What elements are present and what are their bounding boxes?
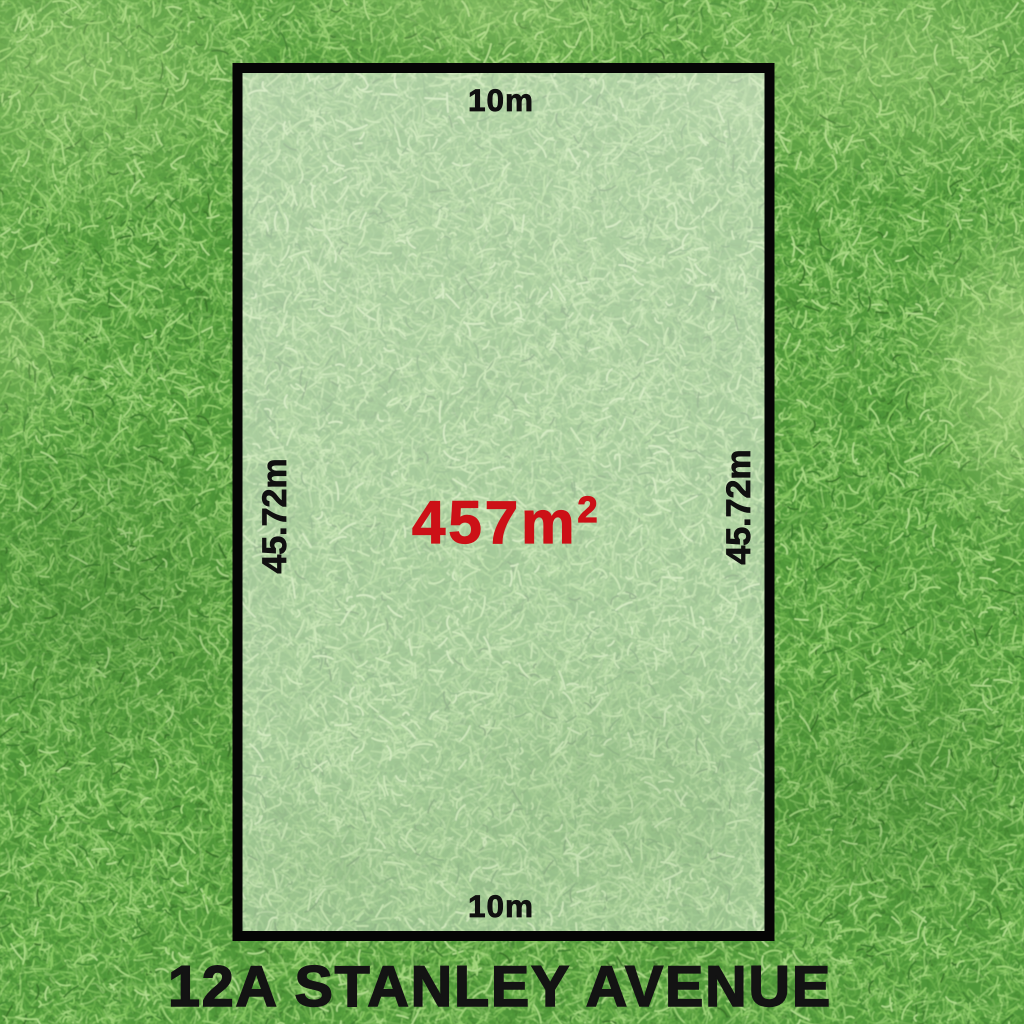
svg-text:457m2: 457m2 <box>412 489 598 556</box>
svg-text:10m: 10m <box>468 82 534 118</box>
svg-text:10m: 10m <box>468 888 534 924</box>
svg-text:45.72m: 45.72m <box>256 458 294 573</box>
svg-text:45.72m: 45.72m <box>720 449 758 564</box>
svg-text:12A STANLEY AVENUE: 12A STANLEY AVENUE <box>168 955 832 1019</box>
